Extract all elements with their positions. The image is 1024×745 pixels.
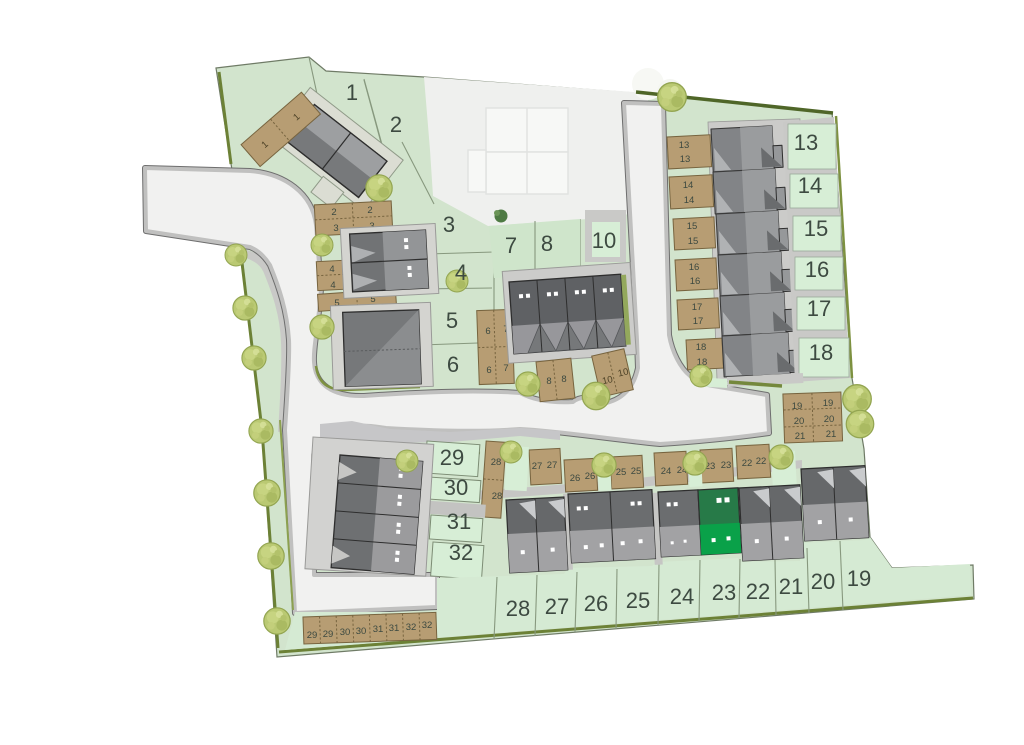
svg-text:2: 2	[367, 205, 372, 216]
svg-text:19: 19	[792, 401, 803, 412]
svg-text:20: 20	[824, 414, 835, 425]
svg-text:16: 16	[805, 257, 829, 282]
svg-text:13: 13	[679, 140, 690, 151]
svg-text:24: 24	[670, 584, 694, 609]
svg-text:17: 17	[693, 316, 704, 327]
svg-text:21: 21	[779, 574, 803, 599]
svg-text:28: 28	[506, 596, 530, 621]
svg-text:21: 21	[795, 431, 806, 442]
svg-text:6: 6	[486, 365, 491, 376]
svg-text:25: 25	[626, 588, 650, 613]
svg-text:13: 13	[680, 154, 691, 165]
svg-text:18: 18	[696, 342, 707, 353]
svg-text:14: 14	[798, 173, 822, 198]
svg-text:16: 16	[689, 262, 700, 273]
svg-text:5: 5	[446, 308, 458, 333]
svg-text:26: 26	[570, 473, 581, 484]
svg-text:8: 8	[541, 231, 553, 256]
svg-text:3: 3	[333, 223, 338, 234]
svg-text:24: 24	[661, 466, 672, 477]
svg-text:27: 27	[547, 460, 558, 471]
svg-text:28: 28	[491, 457, 502, 468]
svg-text:4: 4	[455, 260, 467, 285]
svg-text:4: 4	[329, 264, 334, 275]
svg-text:30: 30	[340, 627, 351, 638]
svg-text:7: 7	[503, 363, 508, 374]
svg-text:26: 26	[585, 471, 596, 482]
svg-text:27: 27	[532, 461, 543, 472]
svg-text:32: 32	[406, 622, 417, 633]
svg-text:30: 30	[444, 475, 468, 500]
svg-text:14: 14	[683, 180, 694, 191]
svg-text:25: 25	[616, 467, 627, 478]
svg-text:26: 26	[584, 591, 608, 616]
svg-text:32: 32	[422, 620, 433, 631]
svg-text:7: 7	[505, 233, 517, 258]
svg-text:29: 29	[440, 445, 464, 470]
svg-text:30: 30	[356, 626, 367, 637]
svg-text:28: 28	[492, 491, 503, 502]
svg-text:31: 31	[447, 509, 471, 534]
svg-text:2: 2	[331, 207, 336, 218]
svg-text:8: 8	[561, 374, 566, 385]
svg-text:3: 3	[443, 212, 455, 237]
svg-text:20: 20	[794, 416, 805, 427]
svg-text:1: 1	[346, 80, 358, 105]
svg-text:6: 6	[485, 326, 490, 337]
svg-text:17: 17	[692, 302, 703, 313]
svg-text:23: 23	[712, 580, 736, 605]
svg-text:4: 4	[330, 280, 335, 291]
svg-text:19: 19	[847, 566, 871, 591]
svg-text:20: 20	[811, 569, 835, 594]
svg-text:32: 32	[449, 540, 473, 565]
svg-text:6: 6	[447, 352, 459, 377]
svg-text:14: 14	[684, 195, 695, 206]
svg-text:15: 15	[804, 216, 828, 241]
svg-text:19: 19	[823, 398, 834, 409]
svg-text:29: 29	[323, 629, 334, 640]
svg-text:22: 22	[756, 456, 767, 467]
svg-text:15: 15	[688, 236, 699, 247]
svg-text:15: 15	[687, 221, 698, 232]
svg-text:23: 23	[721, 460, 732, 471]
svg-text:27: 27	[545, 594, 569, 619]
svg-text:22: 22	[742, 458, 753, 469]
svg-text:2: 2	[390, 112, 402, 137]
svg-text:31: 31	[389, 623, 400, 634]
svg-text:18: 18	[809, 340, 833, 365]
svg-text:8: 8	[546, 376, 551, 387]
svg-text:13: 13	[794, 130, 818, 155]
svg-text:22: 22	[746, 579, 770, 604]
svg-text:21: 21	[826, 429, 837, 440]
svg-text:25: 25	[631, 466, 642, 477]
svg-text:16: 16	[690, 276, 701, 287]
svg-text:31: 31	[373, 624, 384, 635]
svg-text:17: 17	[807, 296, 831, 321]
svg-text:29: 29	[307, 630, 318, 641]
svg-text:10: 10	[592, 228, 616, 253]
